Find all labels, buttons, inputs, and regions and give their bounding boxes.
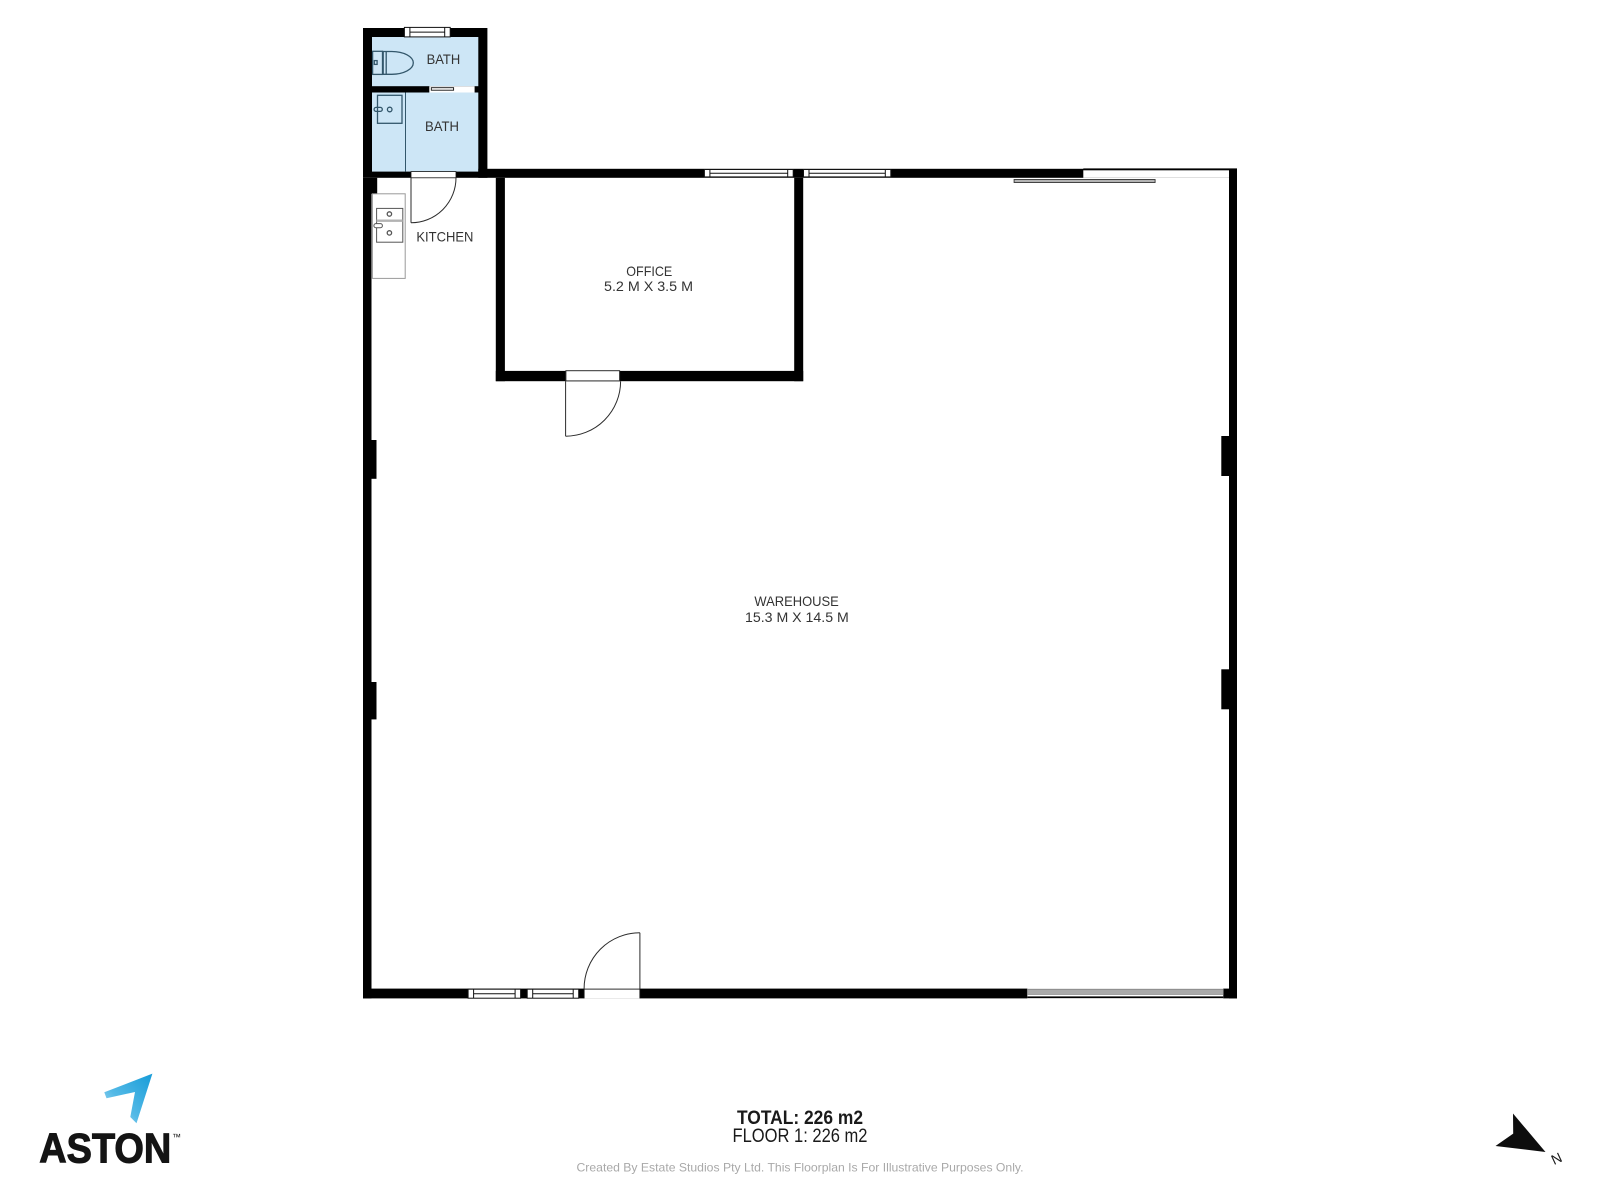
svg-text:WAREHOUSE: WAREHOUSE (754, 593, 838, 609)
svg-text:BATH: BATH (425, 118, 459, 134)
svg-text:Created By Estate Studios Pty: Created By Estate Studios Pty Ltd. This … (577, 1161, 1024, 1174)
svg-text:KITCHEN: KITCHEN (416, 228, 473, 244)
svg-text:ASTON: ASTON (39, 1124, 171, 1171)
svg-text:15.3 M X 14.5 M: 15.3 M X 14.5 M (745, 609, 849, 625)
svg-text:OFFICE: OFFICE (626, 263, 672, 279)
svg-text:5.2 M X 3.5 M: 5.2 M X 3.5 M (604, 278, 693, 294)
svg-text:BATH: BATH (427, 51, 461, 67)
svg-text:FLOOR 1: 226 m2: FLOOR 1: 226 m2 (733, 1125, 868, 1147)
svg-text:™: ™ (172, 1132, 181, 1142)
